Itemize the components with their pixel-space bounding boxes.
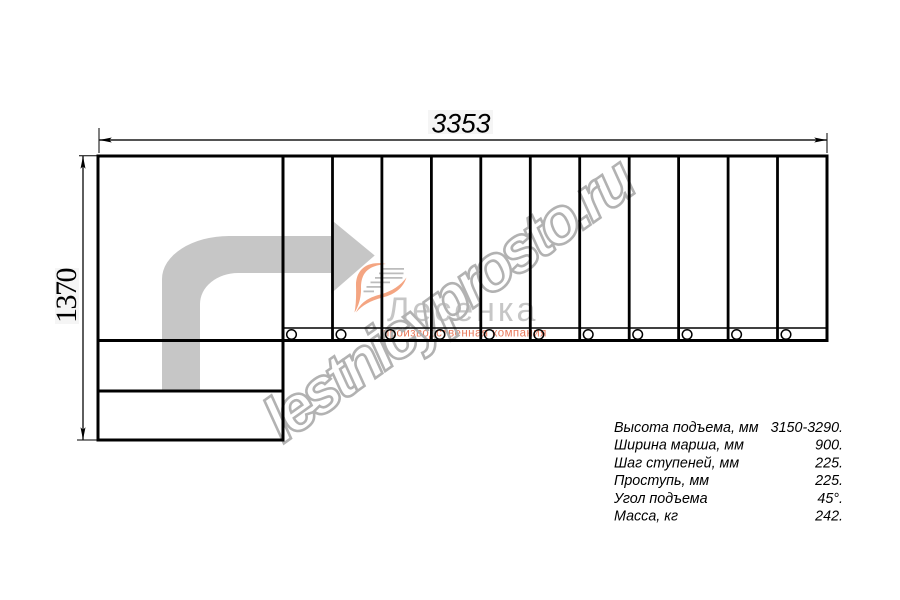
svg-text:900.: 900. xyxy=(815,438,843,454)
svg-text:1370: 1370 xyxy=(50,269,83,324)
svg-text:45°.: 45°. xyxy=(817,491,843,507)
svg-text:225.: 225. xyxy=(814,473,843,489)
svg-text:Ширина марша, мм: Ширина марша, мм xyxy=(614,438,744,454)
svg-text:lestnicyprosto.ru: lestnicyprosto.ru xyxy=(249,142,647,455)
svg-text:Шаг ступеней, мм: Шаг ступеней, мм xyxy=(614,455,739,471)
svg-text:242.: 242. xyxy=(814,509,843,525)
svg-text:Высота подъема, мм: Высота подъема, мм xyxy=(614,420,759,436)
svg-text:3150-3290.: 3150-3290. xyxy=(771,420,843,436)
svg-text:Проступь, мм: Проступь, мм xyxy=(614,473,709,489)
svg-text:3353: 3353 xyxy=(432,109,491,139)
svg-text:225.: 225. xyxy=(814,455,843,471)
svg-text:Угол подъема: Угол подъема xyxy=(613,491,708,507)
svg-text:Масса, кг: Масса, кг xyxy=(614,509,678,525)
